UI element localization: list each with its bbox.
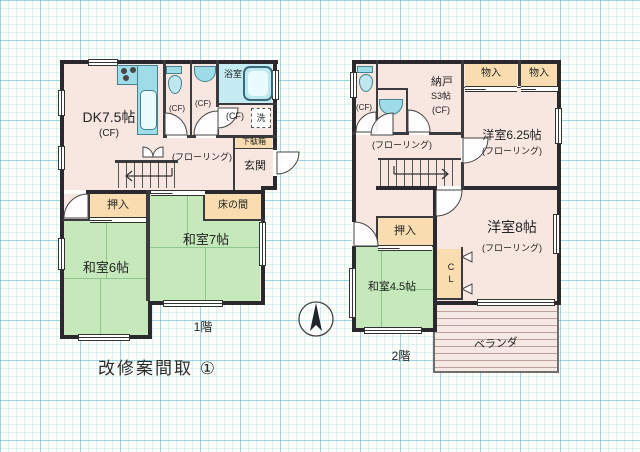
page-title: 改修案間取 ① [98,360,278,377]
room-label-storeroom-cf: (CF) [424,106,458,115]
door-arc [143,147,153,157]
room-label-hall-flooring: (フローリング) [170,153,234,162]
room-label-storeroom-size: S3帖 [424,92,458,101]
stair-direction-arrow [394,166,448,179]
room-label-storeroom: 納戸 [424,77,460,88]
room-label-western625-floor: (フローリング) [477,147,547,156]
room-label-vanity-cf: (CF) [191,100,215,108]
room-label-tokonoma: 床の間 [211,201,255,211]
door-arc [64,194,88,218]
compass-north-icon [296,299,336,339]
room-label-cl: CL [443,256,455,292]
door-arc [194,111,218,135]
room-label-western8: 洋室8帖 [477,220,547,234]
room-label-washroom-cf: (CF) [221,112,249,121]
bifold-door-icon [462,284,472,294]
room-label-tatami6: 和室6帖 [75,261,137,274]
room-label-toilet-cf: (CF) [165,105,189,113]
room-label-hall2-flooring: (フローリング) [372,141,430,150]
room-label-tatami45: 和室4.5帖 [359,282,425,293]
room-label-storage1: 物入 [473,69,509,79]
stair-direction-arrow [126,168,172,181]
door-arc [354,222,378,246]
room-label-shoe-cabinet: 下駄箱 [237,138,271,146]
room-label-western625: 洋室6.25帖 [468,129,556,141]
room-label-closet: 押入 [100,200,136,211]
floor1-label: 1階 [186,321,220,333]
door-arc [436,190,462,216]
floorplan-page: 洗 [0,0,640,452]
floor2-label: 2階 [384,350,418,362]
room-label-closet2: 押入 [387,226,423,237]
room-label-western8-floor: (フローリング) [472,244,552,253]
room-label-entrance: 玄関 [238,161,272,172]
door-arc [165,113,187,135]
room-label-bath: 浴室 [221,70,245,79]
room-sublabel-dk-cf: (CF) [64,129,154,139]
room-label-dk: DK7.5帖 [64,110,154,124]
door-arc [153,147,163,157]
room-label-tatami7: 和室7帖 [175,233,237,246]
room-label-toilet2-cf: (CF) [353,104,375,112]
room-label-storage2: 物入 [522,69,556,79]
door-arc [277,152,299,174]
bifold-door-icon [462,252,472,262]
